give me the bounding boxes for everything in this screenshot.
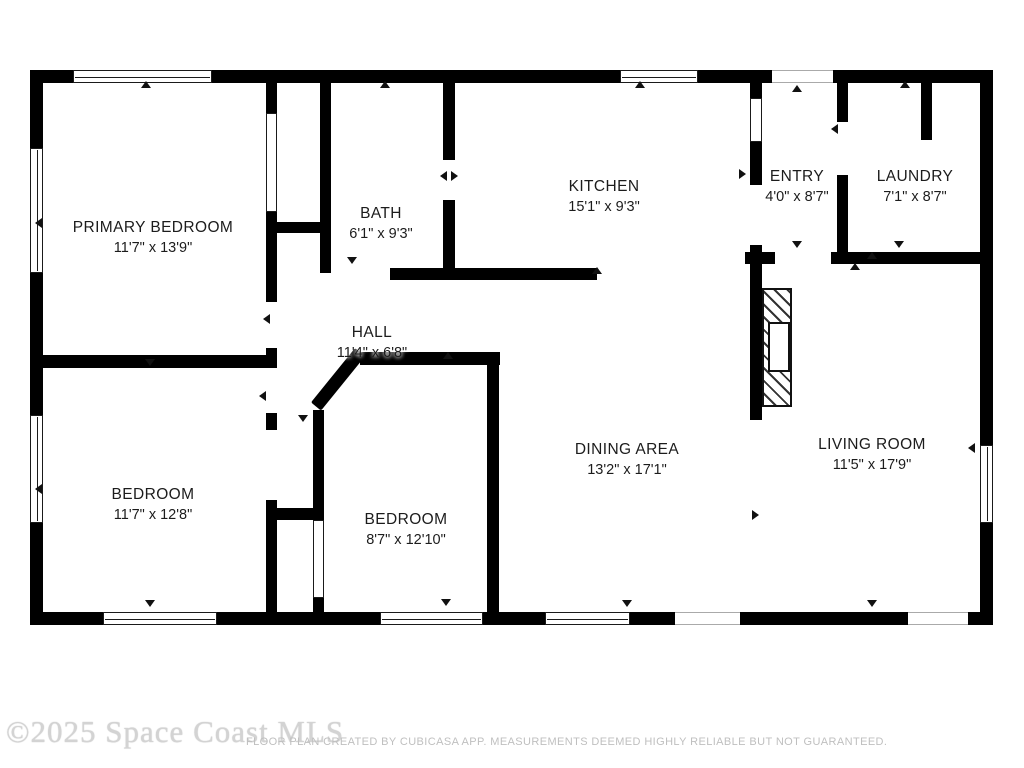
wall-laundry-stub	[921, 82, 932, 140]
room-dimensions-bedroom-left: 11'7" x 12'8"	[112, 506, 195, 526]
door-window-marker-up	[792, 85, 802, 92]
wall-living-west	[750, 264, 762, 420]
door-window-marker-left	[831, 124, 838, 134]
window-pane-line	[37, 417, 38, 521]
floor-plan-canvas: PRIMARY BEDROOM11'7" x 13'9"BATH6'1" x 9…	[0, 0, 1024, 768]
room-dimensions-entry: 4'0" x 8'7"	[765, 188, 828, 208]
wall-bath-left	[320, 82, 331, 273]
room-name-kitchen: KITCHEN	[568, 177, 639, 198]
room-label-primary-bedroom: PRIMARY BEDROOM11'7" x 13'9"	[73, 218, 233, 258]
opening-living-slider-opening	[908, 612, 968, 625]
door-window-marker-down	[347, 257, 357, 264]
door-window-marker-left	[440, 171, 447, 181]
wall-ext-left-2	[30, 273, 43, 415]
window-pane-line	[987, 447, 988, 521]
door-window-marker-left	[35, 218, 42, 228]
room-dimensions-kitchen: 15'1" x 9'3"	[568, 198, 639, 218]
wall-ext-left-3	[30, 523, 43, 625]
room-name-bath: BATH	[349, 204, 412, 225]
wall-ext-bottom-2	[217, 612, 380, 625]
wall-ext-left-1	[30, 70, 43, 148]
room-dimensions-bath: 6'1" x 9'3"	[349, 225, 412, 245]
room-name-laundry: LAUNDRY	[877, 167, 954, 188]
door-window-marker-down	[145, 359, 155, 366]
wall-bedroom2-left-stub	[313, 598, 324, 613]
door-window-marker-right	[451, 171, 458, 181]
opening-front-door-opening	[772, 70, 833, 83]
room-dimensions-dining-area: 13'2" x 17'1"	[575, 461, 679, 481]
wall-bedroom2-left	[313, 410, 324, 520]
door-window-marker-down	[298, 415, 308, 422]
wall-ext-right-2	[980, 523, 993, 625]
room-label-bath: BATH6'1" x 9'3"	[349, 204, 412, 244]
window-pane-line	[547, 619, 628, 620]
door-window-marker-up	[635, 81, 645, 88]
wall-entry-bottom-left	[745, 252, 775, 264]
room-name-entry: ENTRY	[765, 167, 828, 188]
door-window-marker-left	[35, 484, 42, 494]
door-window-marker-down	[867, 600, 877, 607]
door-window-marker-down	[894, 241, 904, 248]
room-name-dining-area: DINING AREA	[575, 440, 679, 461]
window-pane-line	[382, 619, 481, 620]
door-window-marker-up	[867, 252, 877, 259]
wall-closet-bottom-divider	[266, 508, 324, 520]
room-dimensions-hall: 11'4" x 6'8"	[337, 344, 407, 364]
wall-bedroom2-right	[487, 352, 499, 613]
room-label-hall: HALL11'4" x 6'8"	[337, 323, 407, 363]
wall-ext-bottom-3	[483, 612, 545, 625]
door-window-marker-up	[592, 267, 602, 274]
door-window-marker-left	[259, 391, 266, 401]
room-label-living-room: LIVING ROOM11'5" x 17'9"	[818, 435, 926, 475]
wall-bath-right-top	[443, 82, 455, 160]
door-window-marker-right	[739, 169, 746, 179]
window-pane-line	[37, 150, 38, 271]
room-name-living-room: LIVING ROOM	[818, 435, 926, 456]
room-label-bedroom-left: BEDROOM11'7" x 12'8"	[112, 485, 195, 525]
wall-ext-bottom-4	[630, 612, 675, 625]
wall-entry-laundry-wall-top	[837, 82, 848, 122]
door-window-marker-up	[443, 352, 453, 359]
room-label-entry: ENTRY4'0" x 8'7"	[765, 167, 828, 207]
door-window-marker-down	[441, 599, 451, 606]
wall-ext-bottom-1	[30, 612, 103, 625]
room-name-bedroom-middle: BEDROOM	[365, 510, 448, 531]
room-dimensions-living-room: 11'5" x 17'9"	[818, 456, 926, 476]
door-window-marker-up	[850, 263, 860, 270]
wall-entry-left-top	[750, 82, 762, 98]
window-pane-line	[75, 77, 210, 78]
fireplace-firebox	[768, 322, 790, 372]
door-window-marker-left	[968, 443, 975, 453]
door-kitchen-entry-pocket-door	[750, 98, 762, 142]
wall-bath-kitchen-bottom	[390, 268, 597, 280]
disclaimer-text: FLOOR PLAN CREATED BY CUBICASA APP. MEAS…	[246, 736, 887, 748]
door-window-marker-left	[263, 314, 270, 324]
opening-dining-slider-opening	[675, 612, 740, 625]
wall-primary-right-top	[266, 82, 277, 113]
room-name-primary-bedroom: PRIMARY BEDROOM	[73, 218, 233, 239]
window-pane-line	[105, 619, 215, 620]
door-window-marker-up	[141, 81, 151, 88]
door-window-marker-up	[900, 81, 910, 88]
room-label-kitchen: KITCHEN15'1" x 9'3"	[568, 177, 639, 217]
window-pane-line	[622, 77, 696, 78]
floor-plan-drawing: PRIMARY BEDROOM11'7" x 13'9"BATH6'1" x 9…	[0, 0, 1024, 768]
room-label-laundry: LAUNDRY7'1" x 8'7"	[877, 167, 954, 207]
door-window-marker-down	[145, 600, 155, 607]
room-label-bedroom-middle: BEDROOM8'7" x 12'10"	[365, 510, 448, 550]
door-window-marker-down	[622, 600, 632, 607]
wall-ext-bottom-5	[740, 612, 908, 625]
wall-entry-left-mid	[750, 142, 762, 185]
door-window-marker-down	[792, 241, 802, 248]
room-label-dining-area: DINING AREA13'2" x 17'1"	[575, 440, 679, 480]
room-dimensions-primary-bedroom: 11'7" x 13'9"	[73, 239, 233, 259]
wall-ext-top-4	[833, 70, 993, 83]
room-dimensions-bedroom-middle: 8'7" x 12'10"	[365, 531, 448, 551]
wall-ext-bottom-6	[968, 612, 993, 625]
room-name-hall: HALL	[337, 323, 407, 344]
wall-bedroom1-right-top	[266, 413, 277, 430]
room-dimensions-laundry: 7'1" x 8'7"	[877, 188, 954, 208]
door-primary-closet-doors	[266, 113, 277, 212]
door-window-marker-up	[380, 81, 390, 88]
wall-entry-laundry-wall-low	[837, 175, 848, 264]
door-window-marker-right	[752, 510, 759, 520]
room-name-bedroom-left: BEDROOM	[112, 485, 195, 506]
door-bedroom2-closet-doors	[313, 520, 324, 598]
